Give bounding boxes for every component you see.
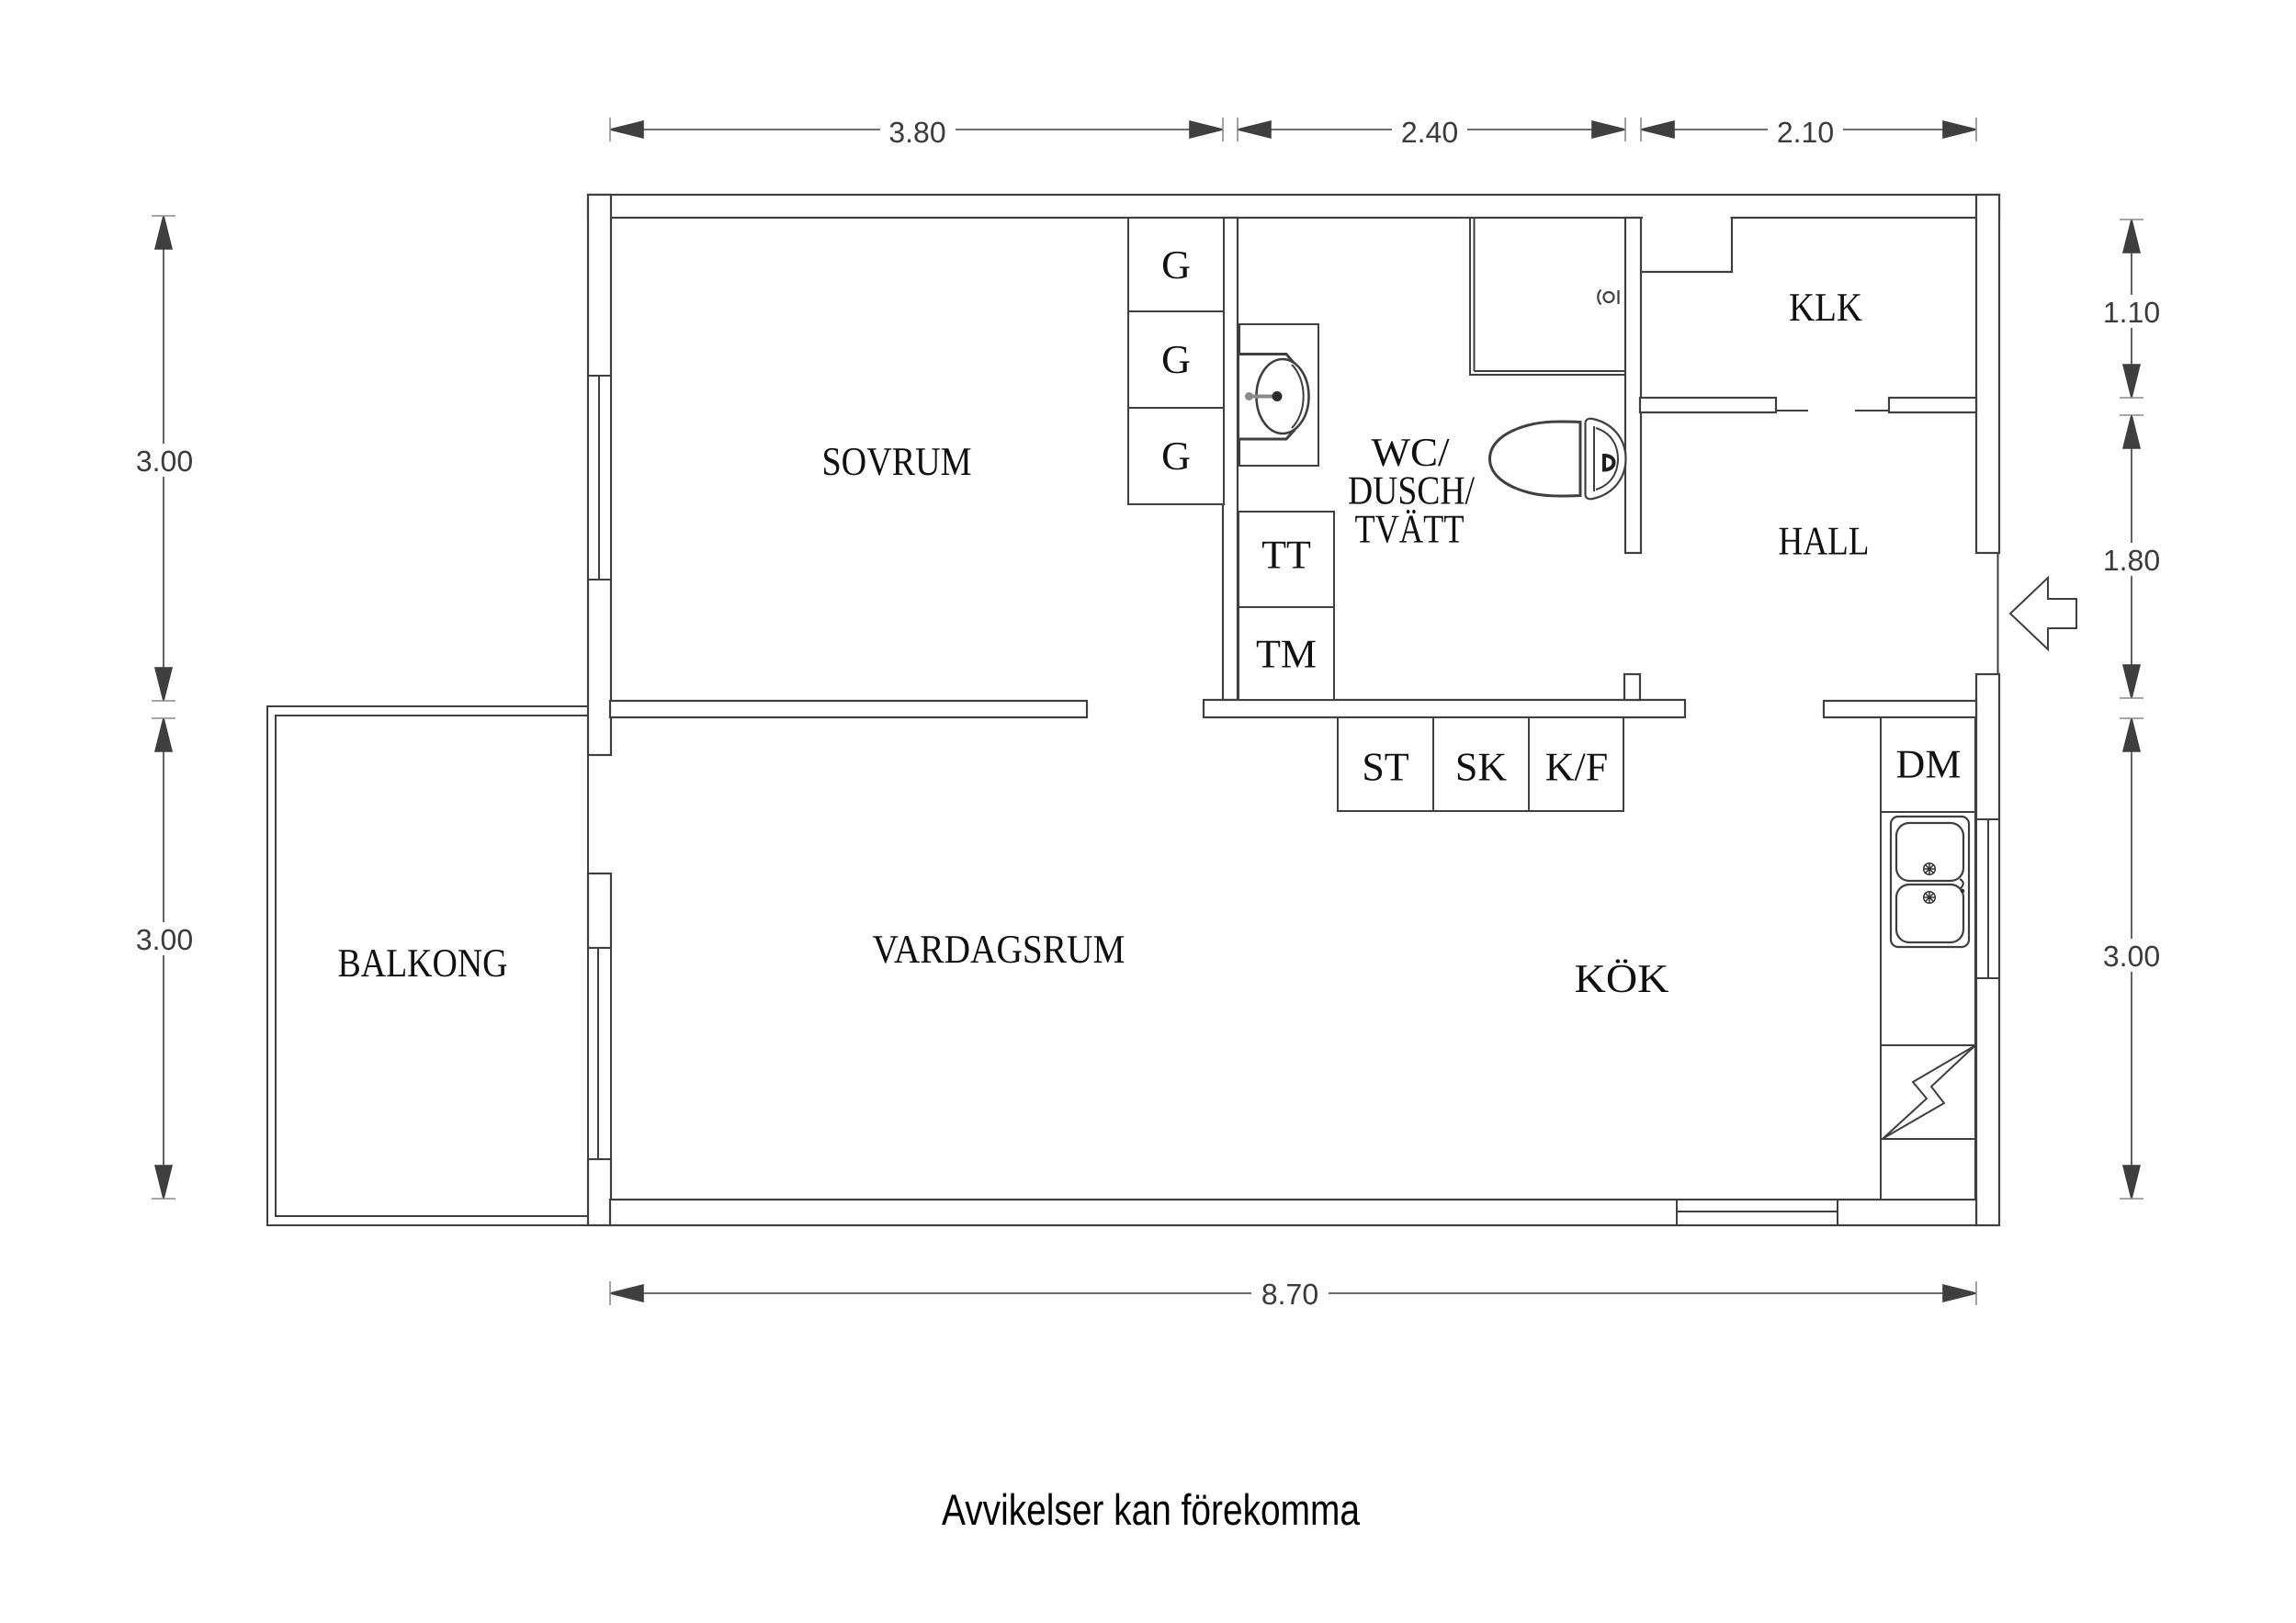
- svg-text:TM: TM: [1256, 632, 1317, 677]
- svg-text:VARDAGSRUM: VARDAGSRUM: [873, 927, 1125, 972]
- svg-text:SK: SK: [1455, 745, 1507, 790]
- svg-text:3.00: 3.00: [136, 445, 193, 478]
- svg-text:3.80: 3.80: [888, 116, 945, 149]
- svg-text:K/F: K/F: [1545, 745, 1608, 790]
- svg-text:1.80: 1.80: [2103, 544, 2160, 577]
- svg-text:KÖK: KÖK: [1575, 956, 1669, 1001]
- svg-text:HALL: HALL: [1779, 519, 1870, 564]
- svg-text:G: G: [1161, 242, 1191, 287]
- svg-text:ST: ST: [1362, 745, 1408, 790]
- svg-text:TT: TT: [1261, 533, 1311, 578]
- svg-text:TVÄTT: TVÄTT: [1355, 507, 1465, 552]
- svg-text:3.00: 3.00: [2103, 940, 2160, 973]
- svg-text:G: G: [1161, 434, 1191, 479]
- svg-text:KLK: KLK: [1789, 285, 1862, 330]
- svg-text:3.00: 3.00: [136, 923, 193, 956]
- svg-text:1.10: 1.10: [2103, 296, 2160, 329]
- svg-text:2.40: 2.40: [1401, 116, 1458, 149]
- svg-text:BALKONG: BALKONG: [338, 941, 508, 986]
- svg-text:DM: DM: [1896, 742, 1962, 787]
- svg-text:8.70: 8.70: [1261, 1278, 1318, 1311]
- svg-text:Avvikelser kan förekomma: Avvikelser kan förekomma: [942, 1486, 1360, 1535]
- svg-text:SOVRUM: SOVRUM: [822, 439, 972, 484]
- svg-text:2.10: 2.10: [1777, 116, 1834, 149]
- svg-text:G: G: [1161, 337, 1191, 382]
